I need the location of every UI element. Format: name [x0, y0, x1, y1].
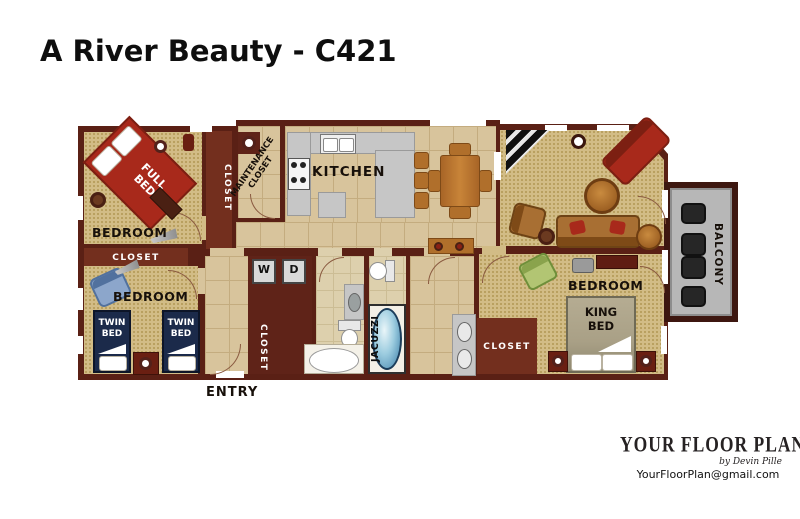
side-table: [90, 192, 106, 208]
dryer-label: D: [284, 263, 304, 276]
window: [77, 336, 83, 354]
dining-chair: [479, 170, 492, 192]
round-side-table: [636, 224, 662, 250]
logo: YOUR FLOOR PLAN by Devin Pille YourFloor…: [620, 434, 796, 481]
door-gap: [198, 268, 205, 294]
jacuzzi-label: JACUZZI: [370, 308, 404, 370]
pillow: [602, 354, 633, 371]
lamp: [183, 134, 194, 151]
door-gap: [210, 248, 244, 256]
burner: [291, 177, 297, 183]
sink-oval: [348, 293, 361, 312]
dining-table: [440, 155, 480, 207]
side-table: [538, 228, 555, 245]
kitchen-island: [318, 192, 346, 218]
lamp: [640, 355, 652, 367]
sink-basin: [323, 138, 338, 152]
dining-chair: [449, 206, 471, 219]
ottoman: [572, 258, 594, 273]
sink-oval: [457, 322, 472, 342]
door-gap: [482, 246, 506, 254]
sheet-fold: [598, 336, 631, 352]
toilet-bowl: [369, 262, 387, 280]
sink-oval: [457, 349, 472, 369]
logo-byline: by Devin Pille: [620, 457, 796, 467]
pillow: [168, 356, 196, 371]
nightstand: [548, 351, 568, 372]
burner: [300, 177, 306, 183]
twin-bed-2: TWIN BED: [162, 310, 200, 373]
window: [430, 120, 486, 126]
washer-label: W: [254, 263, 274, 276]
window: [190, 126, 212, 132]
king-bed: KING BED: [566, 296, 636, 373]
bathtub: [309, 348, 359, 373]
balcony-chair: [681, 233, 706, 256]
round-table: [584, 178, 620, 214]
sofa: [556, 215, 640, 248]
sink-basin: [339, 138, 354, 152]
nightstand: [636, 351, 656, 372]
lamp: [552, 355, 564, 367]
balcony-label: BALCONY: [704, 214, 724, 294]
master-closet: CLOSET: [477, 318, 537, 374]
kitchen-peninsula: [375, 150, 415, 218]
console-table: [428, 238, 474, 254]
dryer: D: [282, 259, 306, 284]
window: [661, 326, 667, 354]
bedroom1-label: BEDROOM: [92, 225, 167, 240]
twin-bed-label: TWIN BED: [164, 318, 198, 340]
stove: [288, 158, 310, 190]
balcony-chair: [681, 286, 706, 307]
window: [77, 196, 83, 220]
nightstand: [133, 352, 159, 375]
bar-stool: [414, 192, 429, 209]
ceiling-light-icon: [154, 140, 167, 153]
kitchen-label: KITCHEN: [312, 164, 385, 180]
burner: [300, 162, 306, 168]
burner: [291, 162, 297, 168]
washer: W: [252, 259, 276, 284]
dining-chair: [428, 170, 441, 192]
pillow: [571, 354, 602, 371]
water-heater-ring: [242, 136, 256, 150]
living-dining-opening: [494, 152, 501, 180]
balcony-door: [662, 250, 668, 284]
pillow: [99, 356, 127, 371]
logo-email: YourFloorPlan@gmail.com: [620, 468, 796, 481]
dining-chair: [449, 143, 471, 156]
sofa-pillow: [569, 220, 586, 236]
jacuzzi-surround: JACUZZI: [368, 304, 406, 374]
king-bed-label: KING BED: [568, 306, 634, 334]
bar-stool: [414, 172, 429, 189]
bathtub-surround: [304, 344, 364, 374]
window: [77, 288, 83, 310]
entry-closet-label: CLOSET: [252, 322, 268, 374]
door-gap: [374, 248, 392, 256]
sofa-pillow: [609, 220, 626, 235]
sofa-back: [558, 237, 638, 246]
master-closet-label: CLOSET: [477, 342, 537, 352]
ceiling-light-icon: [571, 134, 586, 149]
kitchen-sink: [320, 134, 356, 154]
door-gap: [318, 248, 342, 256]
logo-name: YOUR FLOOR PLAN: [620, 431, 796, 457]
bedroom2-label: BEDROOM: [113, 289, 188, 304]
sheet-fold: [98, 344, 126, 354]
sheet-fold: [167, 344, 195, 354]
twin-bed-1: TWIN BED: [93, 310, 131, 373]
balcony-chair: [681, 203, 706, 224]
bath-vanity: [344, 284, 364, 320]
entry-label: ENTRY: [206, 385, 258, 400]
dresser: [596, 255, 638, 269]
twin-bed-label: TWIN BED: [95, 318, 129, 340]
balcony-chair: [681, 256, 706, 279]
double-vanity: [452, 314, 476, 376]
lamp: [139, 357, 152, 370]
closet-upper-label: CLOSET: [206, 138, 232, 238]
bedroom3-label: BEDROOM: [568, 278, 643, 293]
window: [597, 125, 629, 131]
decor: [434, 242, 443, 251]
decor: [455, 242, 464, 251]
bar-stool: [414, 152, 429, 169]
